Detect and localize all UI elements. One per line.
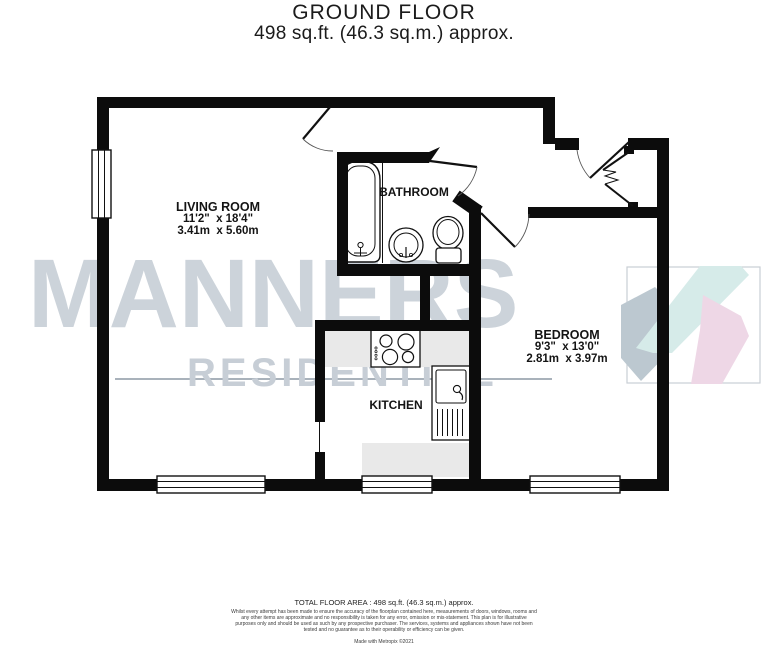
disclaimer-text: Whilst every attempt has been made to en… [231, 609, 537, 633]
floor-plan-drawing [0, 0, 768, 649]
bathroom-name: BATHROOM [372, 186, 456, 198]
bedroom-name: BEDROOM [497, 329, 637, 341]
metropix-credit-text: Made with Metropix ©2021 [0, 639, 768, 645]
floorplan-page: MANNERS RESIDENTIAL [0, 0, 768, 649]
living-room-bottom-window [157, 476, 265, 493]
floor-title: GROUND FLOOR [0, 2, 768, 24]
bedroom-metric: 2.81m x 3.97m [497, 353, 637, 365]
bathroom-label: BATHROOM [372, 186, 456, 198]
living-room-metric: 3.41m x 5.60m [148, 225, 288, 237]
living-room-side-window [92, 150, 111, 218]
kitchen-sink-unit [432, 366, 470, 440]
kitchen-name: KITCHEN [356, 399, 436, 411]
living-room-name: LIVING ROOM [148, 201, 288, 213]
bedroom-window [530, 476, 620, 493]
bedroom-imperial: 9'3" x 13'0" [497, 341, 637, 353]
page-title: GROUND FLOOR 498 sq.ft. (46.3 sq.m.) app… [0, 2, 768, 44]
bedroom-label: BEDROOM 9'3" x 13'0" 2.81m x 3.97m [497, 329, 637, 365]
hall-to-living-door [303, 107, 333, 151]
toilet [433, 217, 463, 264]
bathroom-basin [389, 228, 423, 262]
bedroom-door [481, 213, 529, 247]
floor-area-subtitle: 498 sq.ft. (46.3 sq.m.) approx. [0, 24, 768, 44]
total-floor-area-text: TOTAL FLOOR AREA : 498 sq.ft. (46.3 sq.m… [0, 598, 768, 607]
kitchen-label: KITCHEN [356, 399, 436, 411]
kitchen-window [362, 476, 432, 493]
hall-cupboard-folding-door [603, 152, 633, 206]
living-room-label: LIVING ROOM 11'2" x 18'4" 3.41m x 5.60m [148, 201, 288, 237]
living-room-imperial: 11'2" x 18'4" [148, 213, 288, 225]
stove [371, 329, 420, 367]
entrance-door [577, 142, 629, 178]
